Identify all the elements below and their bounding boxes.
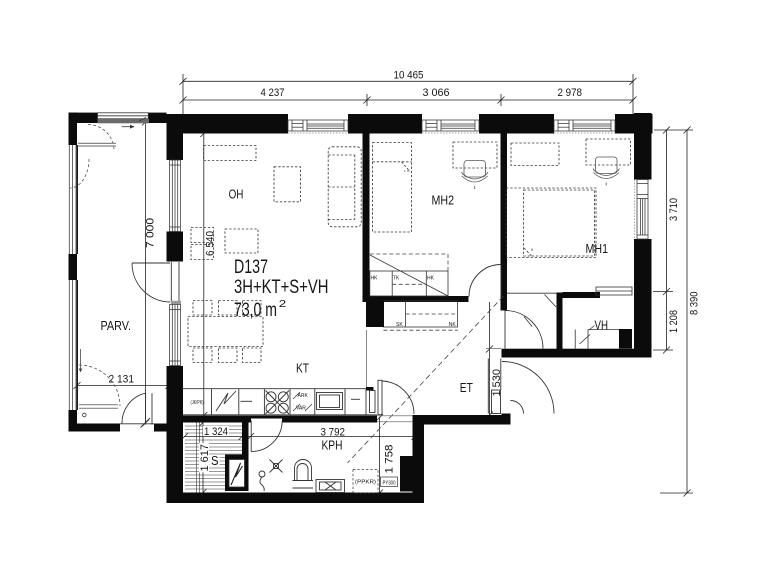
svg-text:HK: HK [427, 276, 435, 282]
svg-text:NK: NK [449, 322, 457, 328]
svg-text:D137: D137 [234, 256, 268, 278]
svg-text:7 000: 7 000 [145, 218, 157, 248]
svg-text:1 324: 1 324 [204, 426, 228, 438]
svg-text:SK: SK [396, 322, 403, 328]
svg-text:KPH: KPH [322, 438, 343, 453]
svg-text:PY300: PY300 [383, 481, 396, 487]
svg-text:KT: KT [296, 361, 309, 376]
svg-text:8 390: 8 390 [689, 292, 701, 316]
svg-text:1 530: 1 530 [491, 369, 503, 397]
svg-text:(JK/PK): (JK/PK) [191, 400, 204, 406]
svg-text:73,0 m: 73,0 m [234, 299, 277, 321]
svg-text:(PPKR): (PPKR) [355, 480, 376, 486]
svg-text:2: 2 [279, 299, 287, 310]
svg-text:2 978: 2 978 [558, 87, 583, 99]
svg-text:PARV.: PARV. [101, 318, 132, 333]
svg-text:4 237: 4 237 [261, 87, 285, 99]
svg-text:3 792: 3 792 [321, 427, 346, 439]
svg-text:OH: OH [229, 187, 244, 202]
svg-text:3 066: 3 066 [423, 87, 450, 99]
svg-text:VAR: VAR [296, 406, 306, 412]
svg-text:3H+KT+S+VH: 3H+KT+S+VH [234, 276, 329, 298]
svg-text:TK: TK [393, 276, 400, 282]
svg-text:10 465: 10 465 [394, 70, 424, 82]
svg-text:1 208: 1 208 [668, 310, 680, 333]
svg-text:2 131: 2 131 [109, 374, 135, 386]
svg-text:VH: VH [595, 318, 609, 333]
svg-text:ARK: ARK [298, 393, 309, 399]
svg-text:MH2: MH2 [432, 193, 455, 208]
svg-text:3 710: 3 710 [668, 198, 680, 221]
svg-text:1 617: 1 617 [199, 444, 211, 472]
svg-text:MH1: MH1 [586, 241, 609, 256]
svg-text:1 758: 1 758 [384, 445, 396, 474]
svg-text:6 540: 6 540 [205, 231, 217, 256]
svg-text:S: S [211, 453, 219, 468]
svg-text:ET: ET [460, 380, 473, 395]
svg-text:HK: HK [371, 276, 379, 282]
